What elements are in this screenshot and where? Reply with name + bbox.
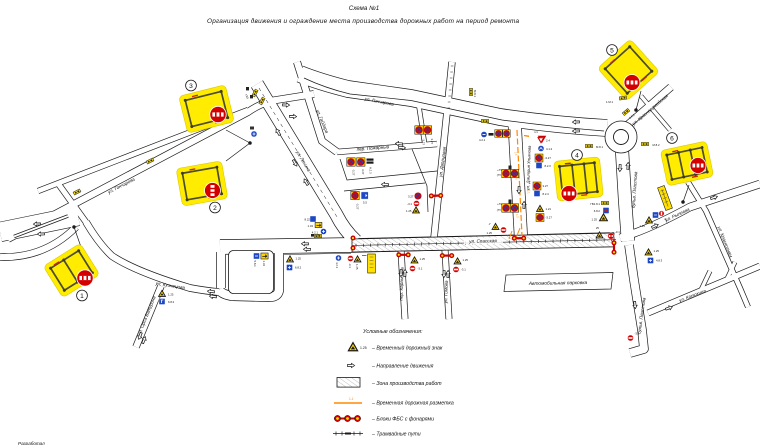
svg-text:6.8.2: 6.8.2 — [594, 209, 601, 213]
svg-text:1.25: 1.25 — [406, 209, 412, 213]
svg-text:6.8.2: 6.8.2 — [168, 300, 175, 304]
svg-text:-3.1: -3.1 — [635, 332, 640, 336]
svg-text:1.25: 1.25 — [355, 264, 359, 270]
svg-text:-3.1: -3.1 — [418, 267, 423, 271]
svg-text:Условные обозначения:: Условные обозначения: — [362, 329, 423, 335]
svg-text:1.1: 1.1 — [349, 397, 354, 401]
svg-text:Организация движения и огражде: Организация движения и ограждение места … — [207, 17, 519, 25]
svg-text:1.25: 1.25 — [654, 249, 660, 253]
svg-text:Схема №1: Схема №1 — [349, 5, 379, 12]
svg-text:3.27: 3.27 — [361, 169, 365, 175]
svg-text:(ГУ: (ГУ — [497, 208, 501, 212]
svg-text:1.25: 1.25 — [487, 231, 493, 235]
svg-text:1.34: 1.34 — [308, 224, 314, 228]
svg-text:-3.1: -3.1 — [461, 268, 466, 272]
svg-text:1.25: 1.25 — [463, 258, 469, 262]
svg-text:1.25: 1.25 — [640, 224, 646, 228]
svg-text:-3.27: -3.27 — [546, 216, 553, 220]
svg-text:– Блоки ФБС с фонарями: – Блоки ФБС с фонарями — [371, 417, 434, 423]
svg-text:-3.27: -3.27 — [545, 156, 552, 160]
svg-text:-3.27: -3.27 — [356, 203, 360, 210]
svg-text:– Временная дорожная разметка: – Временная дорожная разметка — [371, 401, 454, 407]
svg-text:1.34: 1.34 — [262, 261, 266, 267]
svg-text:8.2.3: 8.2.3 — [545, 164, 552, 168]
svg-text:2: 2 — [213, 205, 217, 212]
svg-text:4: 4 — [575, 152, 579, 159]
svg-text:М.8.1: М.8.1 — [596, 145, 603, 149]
svg-text:2.4: 2.4 — [546, 139, 550, 143]
svg-text:-3.1: -3.1 — [407, 202, 412, 206]
svg-text:ул. Гимова: ул. Гимова — [443, 280, 449, 304]
svg-text:Автомобильная парковка: Автомобильная парковка — [528, 280, 588, 287]
svg-text:+ГУ: +ГУ — [497, 168, 502, 172]
svg-text:ГВ1.8.1: ГВ1.8.1 — [590, 202, 600, 206]
svg-text:ул. Спасская: ул. Спасская — [468, 238, 497, 244]
svg-text:5: 5 — [610, 47, 614, 54]
svg-text:1.25: 1.25 — [420, 257, 426, 261]
svg-text:– Направление движения: – Направление движения — [371, 364, 434, 370]
svg-text:1: 1 — [80, 293, 84, 300]
svg-text:-3.1: -3.1 — [615, 230, 620, 234]
svg-text:+ГУ: +ГУ — [497, 202, 502, 206]
svg-text:5.5: 5.5 — [363, 201, 367, 205]
svg-text:М.8.1: М.8.1 — [473, 90, 477, 97]
svg-text:-3.1: -3.1 — [348, 263, 352, 268]
svg-text:– Временный дорожный знак: – Временный дорожный знак — [371, 345, 443, 352]
svg-text:4.1.2: 4.1.2 — [546, 147, 553, 151]
svg-text:25: 25 — [596, 226, 600, 230]
svg-text:-3.27: -3.27 — [352, 169, 356, 176]
svg-text:п.1: п.1 — [534, 130, 538, 134]
svg-text:– Зона производства работ: – Зона производства работ — [371, 381, 442, 387]
svg-text:-3.27: -3.27 — [422, 139, 426, 146]
svg-text:6: 6 — [670, 135, 674, 142]
svg-text:1.25: 1.25 — [296, 257, 302, 261]
svg-text:8.2.4: 8.2.4 — [543, 192, 550, 196]
svg-text:6.8.2: 6.8.2 — [295, 266, 302, 270]
svg-text:8.22: 8.22 — [305, 218, 311, 222]
svg-text:1.25: 1.25 — [592, 218, 598, 222]
svg-text:3.27: 3.27 — [408, 195, 414, 199]
svg-text:4.8.3: 4.8.3 — [656, 259, 663, 263]
svg-text:1.М.1: 1.М.1 — [606, 100, 613, 104]
svg-text:– Трамвайные пути: – Трамвайные пути — [371, 431, 421, 438]
svg-text:4.2.1: 4.2.1 — [479, 138, 486, 142]
svg-text:1.21: 1.21 — [546, 207, 552, 211]
svg-text:3.27: 3.27 — [543, 184, 549, 188]
svg-text:3: 3 — [189, 83, 193, 90]
svg-text:ЕЛУ: ЕЛУ — [315, 234, 320, 238]
svg-text:3.27: 3.27 — [430, 139, 434, 145]
svg-text:5.8.1: 5.8.1 — [253, 261, 257, 268]
svg-text:1.25: 1.25 — [360, 346, 367, 350]
svg-text:Разработал: Разработал — [18, 441, 45, 445]
svg-text:М.8.2: М.8.2 — [653, 143, 660, 147]
svg-text:(ГУ: (ГУ — [497, 173, 501, 177]
svg-text:1.25: 1.25 — [168, 293, 174, 297]
svg-text:А.2.3: А.2.3 — [369, 167, 373, 174]
svg-text:4.2.1: 4.2.1 — [335, 262, 339, 269]
